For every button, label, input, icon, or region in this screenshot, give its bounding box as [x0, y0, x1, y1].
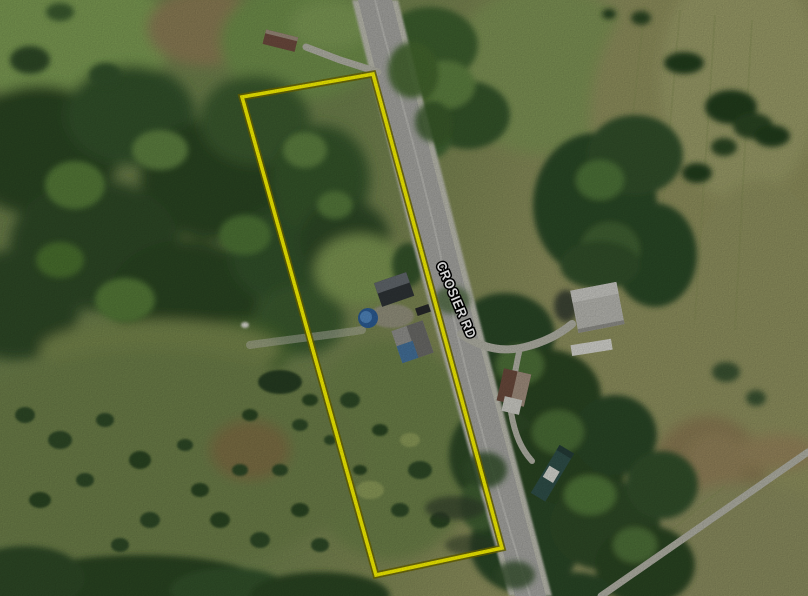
aerial-map: CROSIER RD — [0, 0, 808, 596]
photo-grain-overlay — [0, 0, 808, 596]
map-canvas: CROSIER RD — [0, 0, 808, 596]
